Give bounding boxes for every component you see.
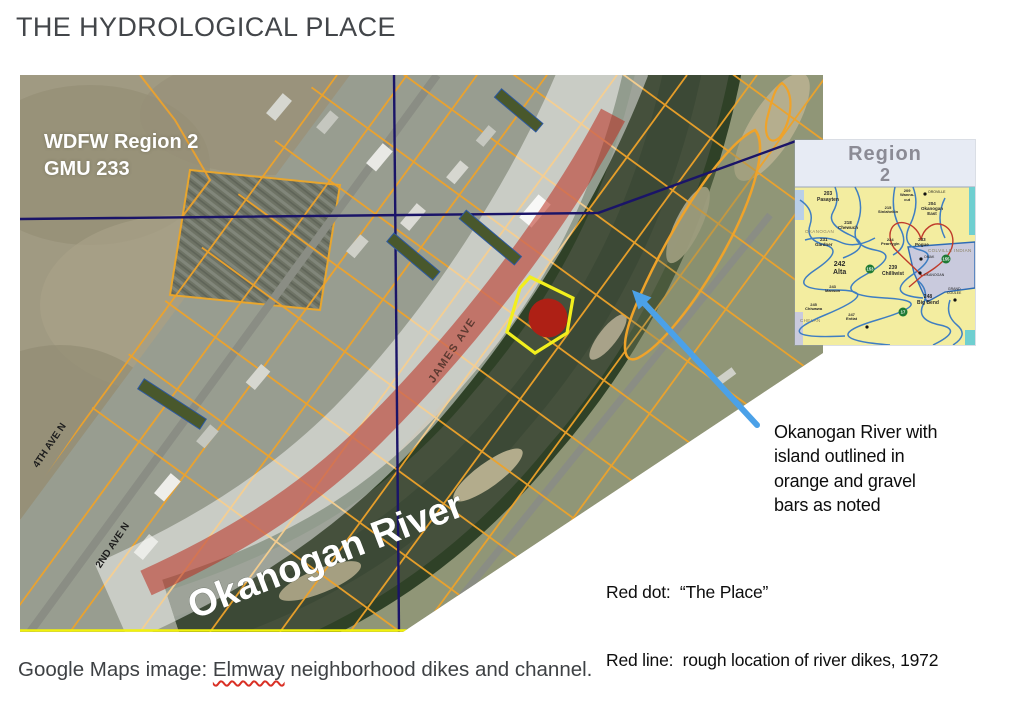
inset-region-label: 218 Chewuch [838,221,858,231]
image-caption: Google Maps image: Elmway neighborhood d… [18,658,592,682]
inset-region-label: 231 Gardner [815,238,833,248]
inset-region-label: 242 Alta [833,261,846,276]
wdfw-region-label: WDFW Region 2 GMU 233 [44,129,198,183]
inset-region-label: OKANOGAN [924,274,944,278]
red-dot-marker [529,299,568,338]
caption-prefix: Google Maps image: [18,658,213,681]
inset-region-label: 215 Sinlahekin [878,206,898,215]
inset-region-label: 203 Pasayten [817,192,839,203]
inset-region-label: OROVILLE [928,191,946,195]
inset-region-label: CHELAN [800,319,821,324]
inset-region-label: 224 Pearrygin [881,238,899,247]
inset-region-label: 204 Okanogan East [921,202,943,217]
inset-region-label: OKANOGAN [805,230,834,235]
presentation-slide: THE HYDROLOGICAL PLACE [0,0,1012,704]
map-legend: Red dot: “The Place” Red line: rough loc… [606,535,938,704]
caption-suffix: neighborhood dikes and channel. [285,658,593,681]
inset-region-label: OMAK [924,256,934,260]
arrow-annotation-text: Okanogan River with island outlined in o… [774,420,952,518]
inset-region-label: GRAND COULEE [947,288,961,296]
inset-map-labels: 203 Pasayten218 Chewuch215 Sinlahekin209… [795,140,975,345]
inset-region-label: 243 Manson [825,285,840,294]
page-title: THE HYDROLOGICAL PLACE [16,12,396,43]
inset-region-label: COLVILLE INDIAN [928,249,972,254]
inset-region-label: 245 Chiwawa [805,303,822,312]
caption-misspelled-word: Elmway [213,658,285,681]
inset-region-label: 239 Chilliwist [882,266,904,277]
inset-region-label: 247 Entiat [846,313,857,322]
legend-line-red-dot: Red dot: “The Place” [606,581,938,604]
inset-region-label: 248 Big Bend [917,295,939,306]
inset-region-label: 233 Pogue [915,238,929,248]
legend-line-red-line: Red line: rough location of river dikes,… [606,649,938,672]
region2-inset-map: 153 155 17 Region 2 203 Pasayten218 Chew… [795,140,975,345]
inset-region-label: 209 Wanna- cut [900,189,914,202]
